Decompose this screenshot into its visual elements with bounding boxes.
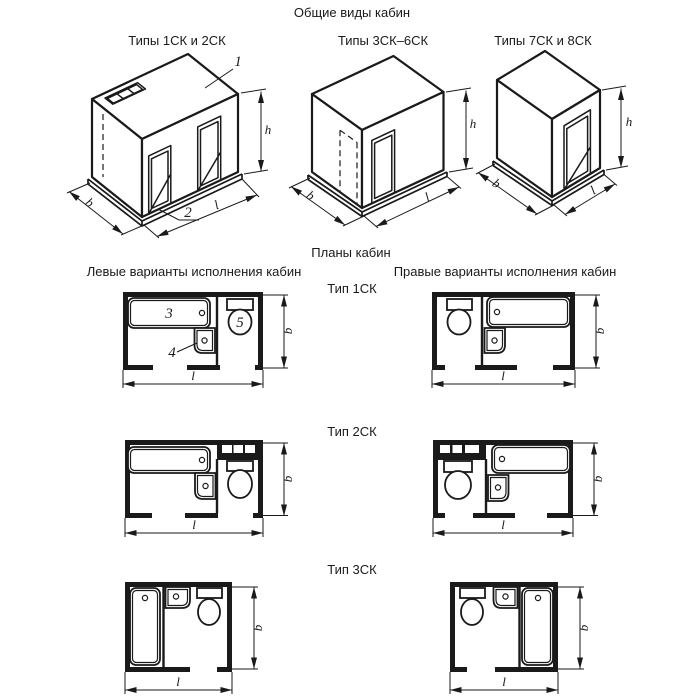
plans-title: Планы кабин bbox=[311, 245, 390, 260]
plan-3ck-right: b l bbox=[443, 576, 595, 700]
washbasin bbox=[485, 328, 506, 353]
dimension-b: b bbox=[263, 295, 295, 368]
dim-label-l: l bbox=[176, 674, 180, 689]
dim-label-h: h bbox=[626, 114, 633, 129]
iso-label-7ck-8ck: Типы 7СК и 8СК bbox=[494, 33, 592, 48]
dim-label-h: h bbox=[265, 122, 272, 137]
iso-label-1ck-2ck: Типы 1СК и 2СК bbox=[128, 33, 226, 48]
dim-label-l: l bbox=[501, 368, 505, 383]
dimension-h: h bbox=[446, 88, 476, 172]
dim-label-l: l bbox=[587, 183, 598, 198]
right-variants-heading: Правые варианты исполнения кабин bbox=[394, 264, 617, 279]
plan-3ck-left: b l bbox=[118, 576, 270, 700]
dimension-b: b bbox=[558, 587, 591, 669]
bathtub bbox=[487, 297, 570, 327]
callout-1-label: 1 bbox=[234, 54, 242, 70]
bathtub bbox=[130, 588, 160, 665]
dimension-b: b bbox=[573, 443, 605, 516]
dimension-l: l bbox=[123, 368, 263, 388]
dimension-l: l bbox=[125, 517, 263, 537]
type-2ck-heading: Тип 2СК bbox=[327, 424, 376, 439]
dimension-l: l bbox=[432, 368, 575, 388]
dim-label-b: b bbox=[280, 475, 295, 482]
plan-1ck-right: b l bbox=[426, 286, 610, 398]
drawing-sheet: Общие виды кабин Типы 1СК и 2СК Типы 3СК… bbox=[0, 0, 700, 700]
cabin-box bbox=[92, 54, 238, 217]
plan-1ck-left: 3 4 5 b l bbox=[116, 286, 300, 398]
dim-label-b: b bbox=[576, 624, 591, 631]
callout-2-label: 2 bbox=[184, 205, 192, 221]
dimension-l: l bbox=[433, 517, 573, 537]
dimension-l: l bbox=[125, 672, 232, 694]
bathtub: 3 bbox=[128, 298, 210, 328]
washbasin bbox=[195, 473, 216, 499]
toilet bbox=[197, 588, 222, 625]
iso-label-3ck-6ck: Типы 3СК–6СК bbox=[338, 33, 428, 48]
toilet bbox=[227, 461, 253, 498]
dimension-h: h bbox=[241, 89, 271, 174]
bathtub bbox=[492, 445, 570, 473]
vent-grille-cell bbox=[453, 445, 463, 453]
washbasin bbox=[494, 587, 518, 608]
bathtub bbox=[128, 447, 210, 473]
dimension-b: b bbox=[575, 295, 607, 368]
plan-2ck-left: b l bbox=[111, 435, 303, 555]
washbasin bbox=[488, 475, 509, 501]
vent-grille-cell bbox=[222, 445, 232, 453]
dim-label-l: l bbox=[192, 517, 196, 532]
iso-view-1ck-2ck: 1 2 h b l bbox=[58, 48, 282, 240]
dim-label-l: l bbox=[212, 197, 221, 212]
dim-label-b: b bbox=[280, 327, 295, 334]
toilet bbox=[460, 588, 485, 625]
dimension-l: l bbox=[450, 672, 558, 694]
dim-label-l: l bbox=[422, 189, 432, 204]
vent-grille-cell bbox=[465, 445, 479, 453]
vent-grille bbox=[433, 440, 486, 460]
vent-grille-cell bbox=[245, 445, 255, 453]
plan-2ck-right: b l bbox=[426, 435, 618, 555]
vent-grille bbox=[217, 440, 263, 460]
washbasin: 4 bbox=[168, 328, 215, 361]
toilet bbox=[444, 461, 472, 499]
dimension-b: b bbox=[263, 443, 295, 516]
type-3ck-heading: Тип 3СК bbox=[327, 562, 376, 577]
cabin-box bbox=[312, 56, 444, 208]
callout-4-label: 4 bbox=[168, 345, 176, 361]
dim-label-b: b bbox=[250, 624, 265, 631]
dim-label-l: l bbox=[191, 368, 195, 383]
dim-label-b: b bbox=[592, 327, 607, 334]
dim-label-b: b bbox=[590, 475, 605, 482]
dim-label-l: l bbox=[502, 674, 506, 689]
iso-view-7ck-8ck: h b l bbox=[473, 48, 648, 222]
callout-5-label: 5 bbox=[236, 315, 244, 331]
dimension-h: h bbox=[602, 86, 632, 170]
bathtub bbox=[522, 588, 553, 665]
vent-grille-cell bbox=[234, 445, 244, 453]
toilet: 5 bbox=[227, 299, 253, 335]
type-1ck-heading: Тип 1СК bbox=[327, 281, 376, 296]
dimension-b: b bbox=[232, 587, 265, 669]
vent-grille-cell bbox=[440, 445, 450, 453]
left-variants-heading: Левые варианты исполнения кабин bbox=[87, 264, 302, 279]
washbasin bbox=[166, 587, 191, 608]
general-views-title: Общие виды кабин bbox=[294, 5, 410, 20]
dim-label-l: l bbox=[501, 517, 505, 532]
callout-3-label: 3 bbox=[164, 306, 173, 322]
iso-view-3ck-6ck: h b l bbox=[283, 48, 483, 230]
toilet bbox=[447, 299, 472, 335]
